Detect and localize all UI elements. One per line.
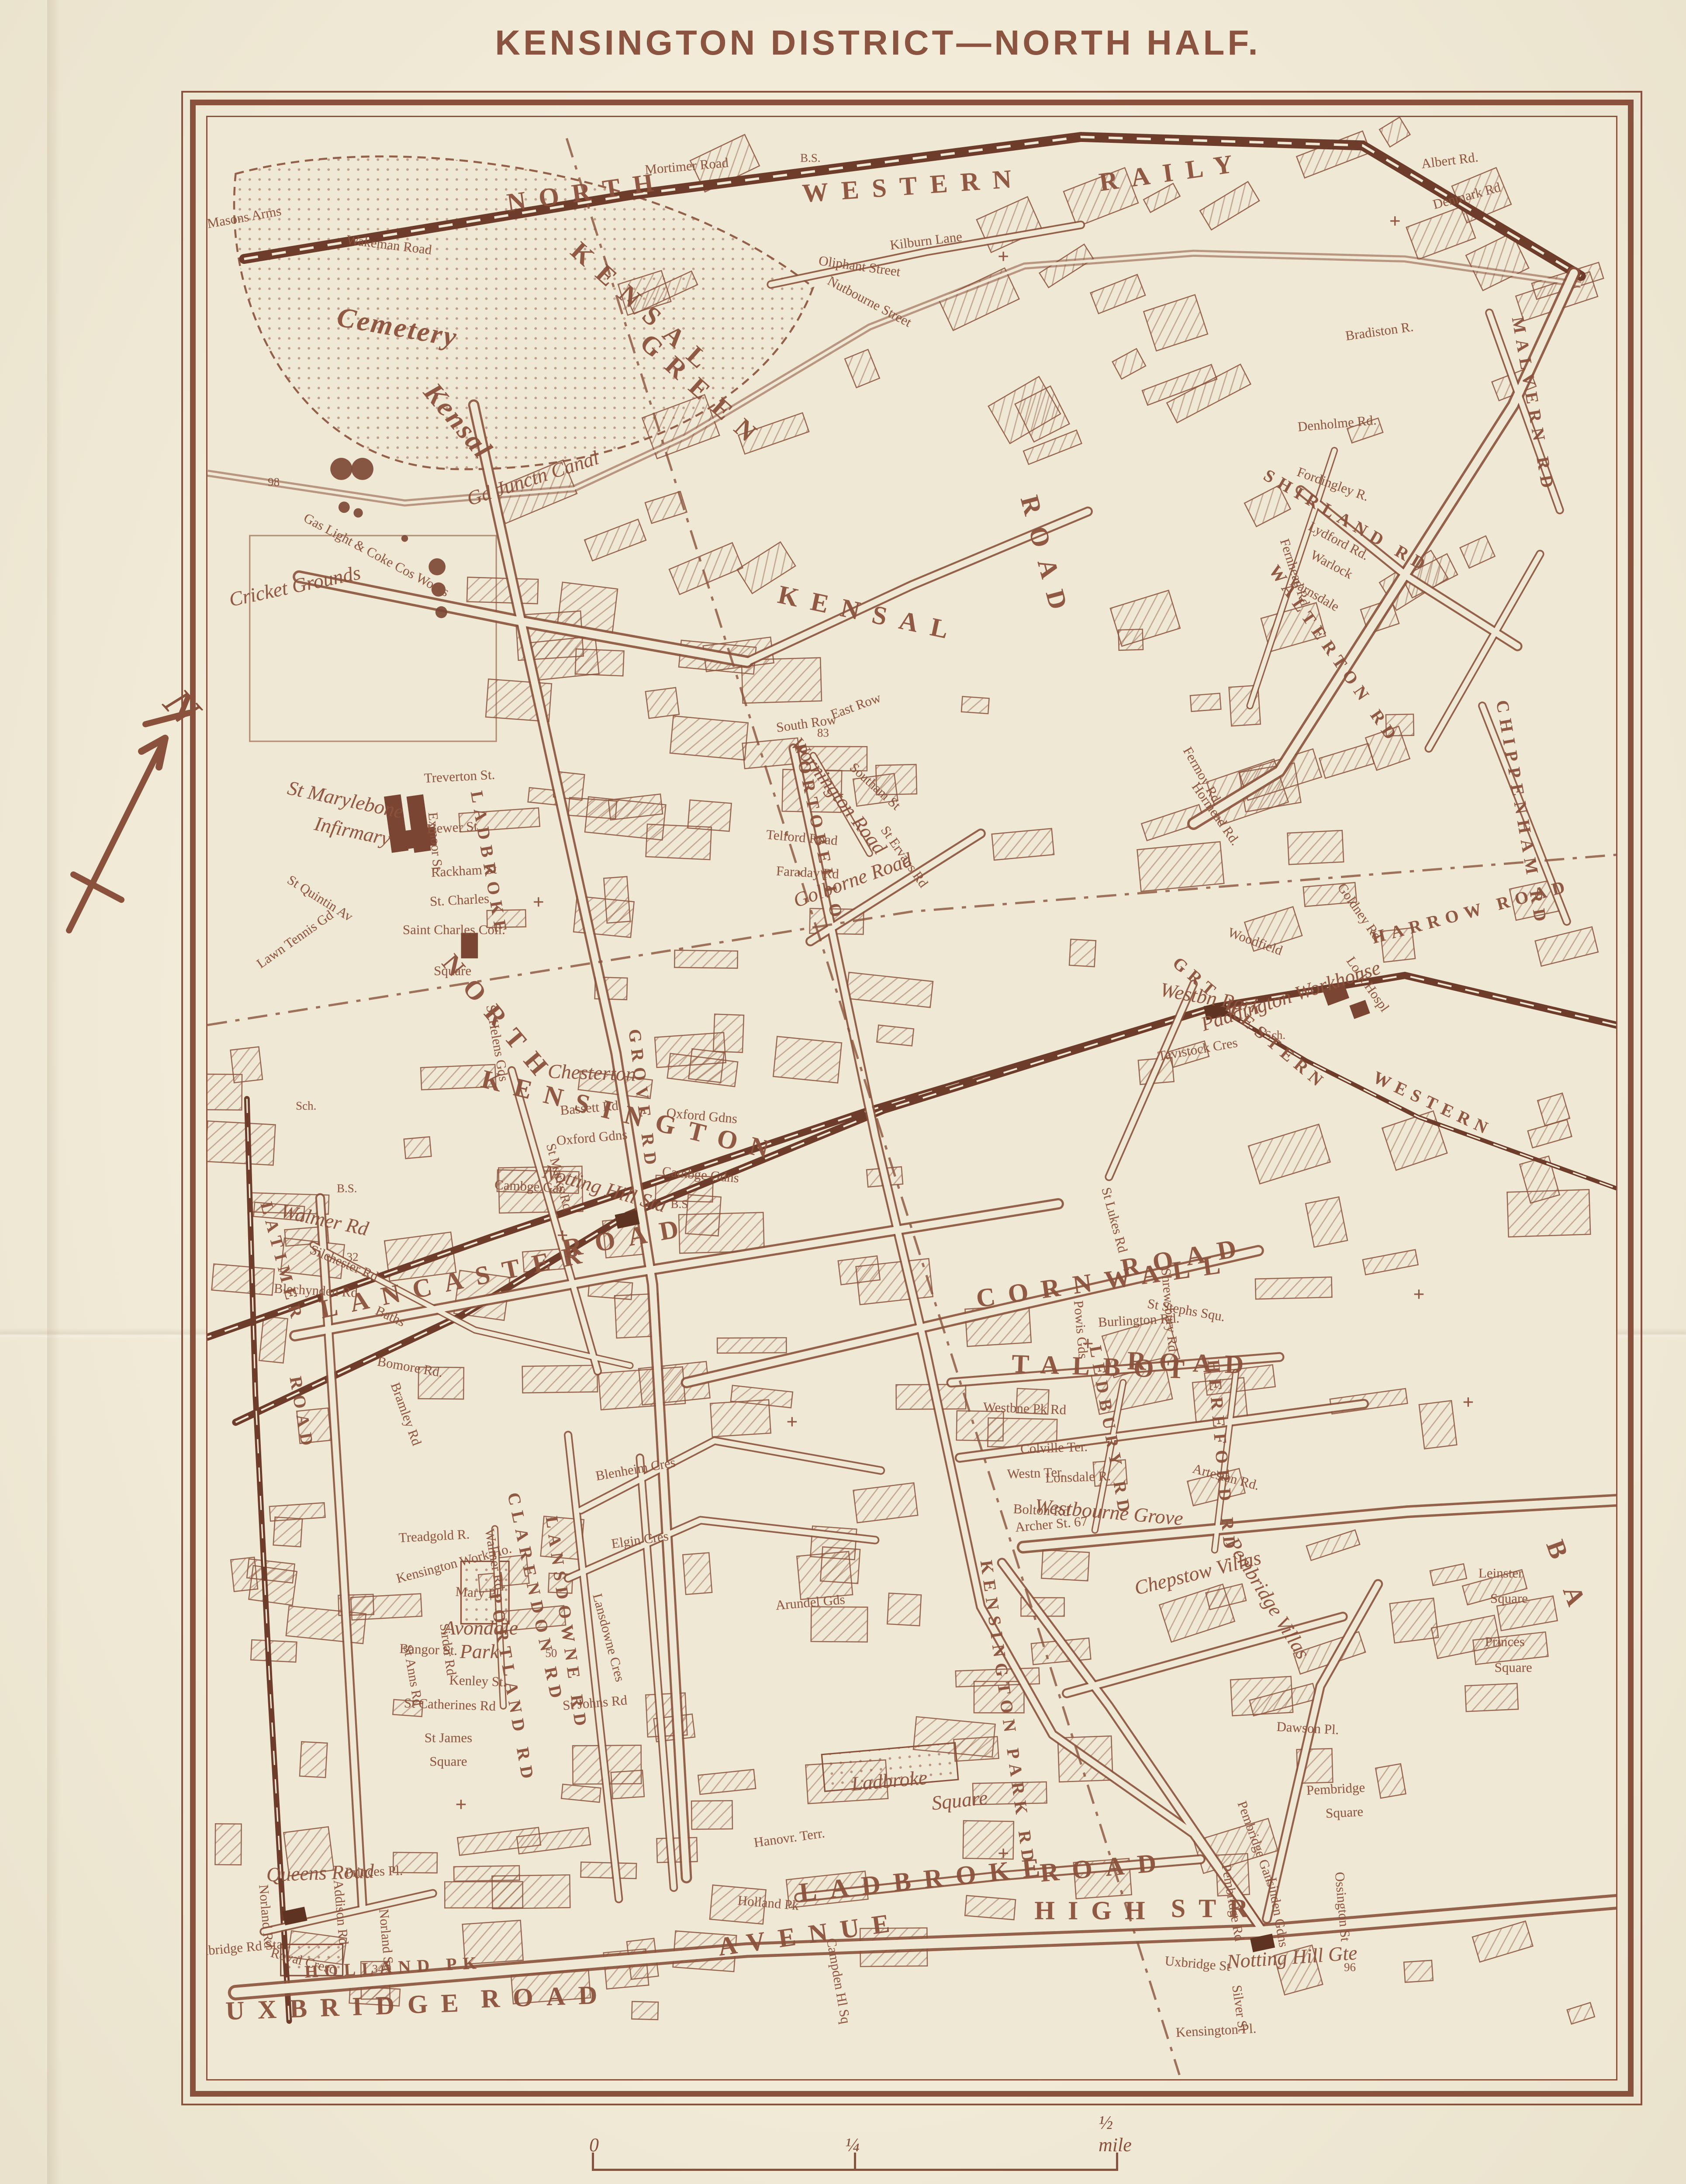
- map-label: 32: [347, 1251, 359, 1263]
- map-label: Princes Pl.: [345, 1863, 403, 1879]
- church-cross-icon: +: [533, 892, 544, 912]
- church-cross-icon: +: [1462, 1392, 1474, 1412]
- map-label: Treverton St.: [424, 768, 495, 785]
- map-frame: NORTHWESTERNRAILYKENSALGREENKensalCemete…: [190, 100, 1634, 2097]
- map-label: Chesterton: [548, 1061, 636, 1084]
- map-label: Rackham St: [431, 862, 497, 879]
- map-label: Lonsdale R.: [1045, 1469, 1111, 1485]
- map-label: 96: [1344, 1961, 1356, 1973]
- map-label: Leinster: [1479, 1566, 1523, 1580]
- church-cross-icon: +: [786, 1412, 798, 1432]
- church-cross-icon: +: [998, 246, 1009, 266]
- map-label: Colville Ter.: [1020, 1439, 1088, 1455]
- map-label: St James: [425, 1731, 472, 1745]
- map-label: STR: [1171, 1895, 1261, 1921]
- map-label: Hewer St.: [427, 819, 481, 835]
- scale-label-half: ½ mile: [1099, 2111, 1132, 2156]
- map-label: 98: [268, 476, 280, 488]
- map-label: Square: [1490, 1592, 1528, 1605]
- map-label: Square: [434, 964, 471, 978]
- scale-bar: 0 ¼ ½ mile: [592, 2126, 1120, 2179]
- map-label: Pembridge: [1306, 1780, 1365, 1797]
- map-label: St. Charles: [430, 892, 490, 908]
- map-label: Saint Charles Coll.: [403, 923, 505, 936]
- scale-label-quarter: ¼: [845, 2134, 860, 2156]
- map-label: Kenley St.: [449, 1673, 507, 1689]
- church-cross-icon: +: [998, 1843, 1009, 1863]
- map-label: Avondale: [443, 1618, 518, 1638]
- map-label: Princes: [1485, 1635, 1525, 1648]
- map-label: ROAD: [1127, 1348, 1258, 1378]
- map-label: St Catherines Rd: [404, 1696, 496, 1713]
- map-label: Kensington Pl.: [1175, 2021, 1257, 2039]
- map-label: Square: [429, 1755, 467, 1768]
- map-label: Sch.: [1265, 1030, 1285, 1041]
- map-label: ROAD: [480, 1981, 611, 2012]
- scale-label-zero: 0: [589, 2134, 599, 2156]
- church-cross-icon: +: [1413, 1284, 1424, 1304]
- church-cross-icon: +: [1389, 211, 1401, 231]
- compass-north-arrow: N: [56, 673, 200, 943]
- map-label: Square: [1495, 1660, 1532, 1674]
- map-label: B.S.: [800, 152, 821, 164]
- map-label: B.S: [670, 1198, 688, 1210]
- map-title: KENSINGTON DISTRICT—NORTH HALF.: [0, 23, 1686, 63]
- map-label: HIGH: [1034, 1897, 1158, 1924]
- paper-fold-crease: [47, 0, 60, 2184]
- map-label: Treadgold R.: [398, 1527, 470, 1544]
- map-label: Dawson Pl.: [1276, 1720, 1339, 1736]
- map-label: B.S.: [337, 1182, 357, 1194]
- church-cross-icon: +: [455, 1794, 466, 1814]
- map-label: Park: [460, 1641, 499, 1662]
- map-label: 50: [545, 1648, 557, 1659]
- map-label: Square: [1325, 1804, 1364, 1820]
- map-label: Westbne Pk Rd: [983, 1400, 1066, 1417]
- map-label: 83: [817, 727, 829, 739]
- church-cross-icon: +: [1082, 1334, 1094, 1354]
- map-label: Sch.: [296, 1100, 316, 1112]
- map-page: KENSINGTON DISTRICT—NORTH HALF. N NORTHW…: [0, 0, 1686, 2184]
- map-label: Faraday Rd: [776, 864, 839, 881]
- map-label: 34: [372, 1963, 384, 1975]
- church-cross-icon: +: [557, 1225, 568, 1245]
- map-canvas: NORTHWESTERNRAILYKENSALGREENKensalCemete…: [206, 116, 1617, 2080]
